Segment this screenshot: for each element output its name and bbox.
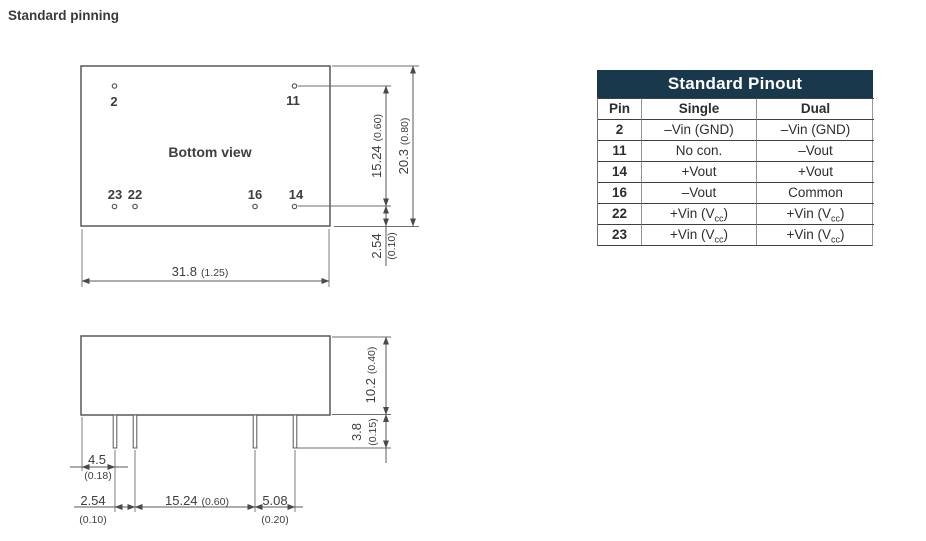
col-header-single: Single: [641, 98, 756, 119]
dim-bv-offset-mm: 2.54: [369, 233, 384, 258]
dim-sv-edge-mm: 4.5: [88, 452, 106, 467]
side-view-leg-2: [133, 415, 137, 448]
side-view-body: [81, 336, 330, 415]
single-func: No con.: [641, 140, 756, 161]
pin-number: 22: [598, 203, 641, 224]
dim-sv-pin-length-inch: (0.15): [367, 418, 379, 445]
side-view-leg-4: [293, 415, 297, 448]
pin-16-label: 16: [248, 187, 262, 202]
dim-bv-pin-span: 15.24(0.60): [369, 114, 384, 178]
single-func: –Vin (GND): [641, 119, 756, 140]
side-view-leg-1: [113, 415, 117, 448]
pin-23-label: 23: [108, 187, 122, 202]
pin-16-hole: [253, 204, 257, 208]
bottom-view-label: Bottom view: [168, 144, 251, 160]
single-func: +Vin (Vcc): [641, 203, 756, 224]
dual-func: Common: [756, 182, 874, 203]
dim-sv-pin-length-mm: 3.8: [349, 423, 364, 441]
dual-func: –Vout: [756, 140, 874, 161]
pin-2-label: 2: [110, 94, 117, 109]
dim-sv-pitch-small-inch: (0.10): [79, 514, 106, 526]
dim-sv-edge-inch: (0.18): [84, 470, 111, 482]
pinout-table-grid: Pin Single Dual 2 –Vin (GND) –Vin (GND) …: [597, 98, 873, 246]
pin-number: 11: [598, 140, 641, 161]
pin-23-hole: [112, 204, 116, 208]
dual-func: +Vin (Vcc): [756, 203, 874, 224]
pinout-table: Standard Pinout Pin Single Dual 2 –Vin (…: [597, 70, 873, 246]
side-view-leg-3: [253, 415, 257, 448]
pin-number: 2: [598, 119, 641, 140]
dim-bv-offset-inch: (0.10): [386, 232, 398, 259]
dual-func: +Vin (Vcc): [756, 224, 874, 245]
dual-func: +Vout: [756, 161, 874, 182]
dim-sv-case-height: 10.2(0.40): [363, 347, 378, 404]
pin-number: 16: [598, 182, 641, 203]
pin-22-label: 22: [128, 187, 142, 202]
dim-bv-width: 31.8(1.25): [172, 264, 229, 279]
dim-sv-pitch-mid-mm: 5.08: [262, 493, 287, 508]
bottom-view-diagram: 2 11 23 22 16 14 Bottom view 15.24(0.60)…: [81, 66, 419, 287]
pin-14-hole: [292, 204, 296, 208]
pin-14-label: 14: [289, 187, 304, 202]
pin-11-hole: [292, 84, 296, 88]
single-func: +Vout: [641, 161, 756, 182]
datasheet-page: Standard pinning 2 11 23 22 16 14 Bottom…: [0, 0, 926, 541]
dual-func: –Vin (GND): [756, 119, 874, 140]
pin-11-label: 11: [286, 93, 300, 108]
dim-bv-height: 20.3(0.80): [396, 118, 411, 175]
pin-number: 23: [598, 224, 641, 245]
col-header-dual: Dual: [756, 98, 874, 119]
pin-number: 14: [598, 161, 641, 182]
dim-sv-pitch-large: 15.24(0.60): [165, 493, 229, 508]
col-header-pin: Pin: [598, 98, 641, 119]
pinout-table-title: Standard Pinout: [597, 70, 873, 98]
single-func: –Vout: [641, 182, 756, 203]
single-func: +Vin (Vcc): [641, 224, 756, 245]
dim-sv-pitch-small-mm: 2.54: [80, 493, 105, 508]
side-view-diagram: 10.2(0.40) 3.8 (0.15) 4.5 (0.18) 2.54 (0…: [70, 336, 391, 526]
pin-22-hole: [133, 204, 137, 208]
pin-2-hole: [112, 84, 116, 88]
dim-sv-pitch-mid-inch: (0.20): [261, 514, 288, 526]
